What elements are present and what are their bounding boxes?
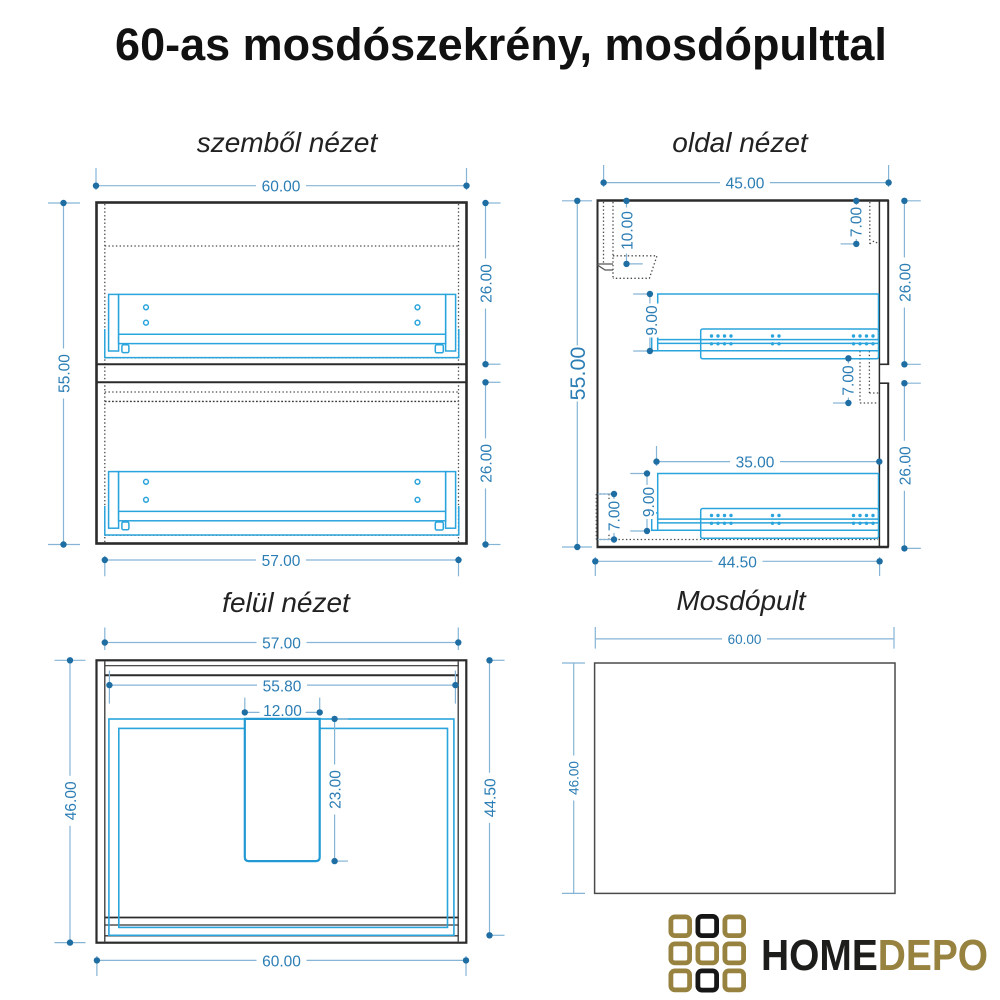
svg-text:44.50: 44.50 [483, 778, 500, 817]
svg-text:26.00: 26.00 [897, 446, 914, 485]
svg-text:55.80: 55.80 [263, 679, 302, 696]
svg-text:26.00: 26.00 [897, 263, 914, 302]
svg-text:9.00: 9.00 [641, 487, 658, 518]
svg-text:7.00: 7.00 [849, 207, 866, 238]
svg-text:7.00: 7.00 [607, 501, 624, 532]
svg-text:44.50: 44.50 [718, 555, 757, 572]
svg-text:9.00: 9.00 [644, 305, 661, 336]
svg-text:57.00: 57.00 [262, 553, 301, 570]
svg-text:35.00: 35.00 [736, 455, 775, 472]
svg-text:HOMEDEPO: HOMEDEPO [761, 930, 988, 980]
svg-text:45.00: 45.00 [726, 176, 765, 193]
svg-text:26.00: 26.00 [479, 444, 496, 483]
svg-text:23.00: 23.00 [328, 770, 345, 809]
svg-text:60-as mosdószekrény, mosdópult: 60-as mosdószekrény, mosdópulttal [115, 19, 887, 70]
svg-text:60.00: 60.00 [262, 179, 301, 196]
svg-text:12.00: 12.00 [263, 703, 302, 720]
svg-text:10.00: 10.00 [620, 211, 637, 250]
svg-text:26.00: 26.00 [479, 264, 496, 303]
svg-text:60.00: 60.00 [262, 953, 301, 970]
svg-text:55.00: 55.00 [57, 354, 74, 393]
svg-text:felül nézet: felül nézet [222, 587, 351, 618]
svg-text:Mosdópult: Mosdópult [676, 585, 806, 616]
svg-text:55.00: 55.00 [566, 347, 590, 401]
svg-text:7.00: 7.00 [841, 365, 858, 396]
svg-text:46.00: 46.00 [63, 781, 80, 820]
svg-text:57.00: 57.00 [262, 636, 301, 653]
svg-text:oldal nézet: oldal nézet [672, 127, 809, 158]
svg-text:szemből nézet: szemből nézet [197, 127, 379, 158]
svg-text:46.00: 46.00 [567, 761, 582, 795]
svg-text:60.00: 60.00 [728, 632, 762, 647]
